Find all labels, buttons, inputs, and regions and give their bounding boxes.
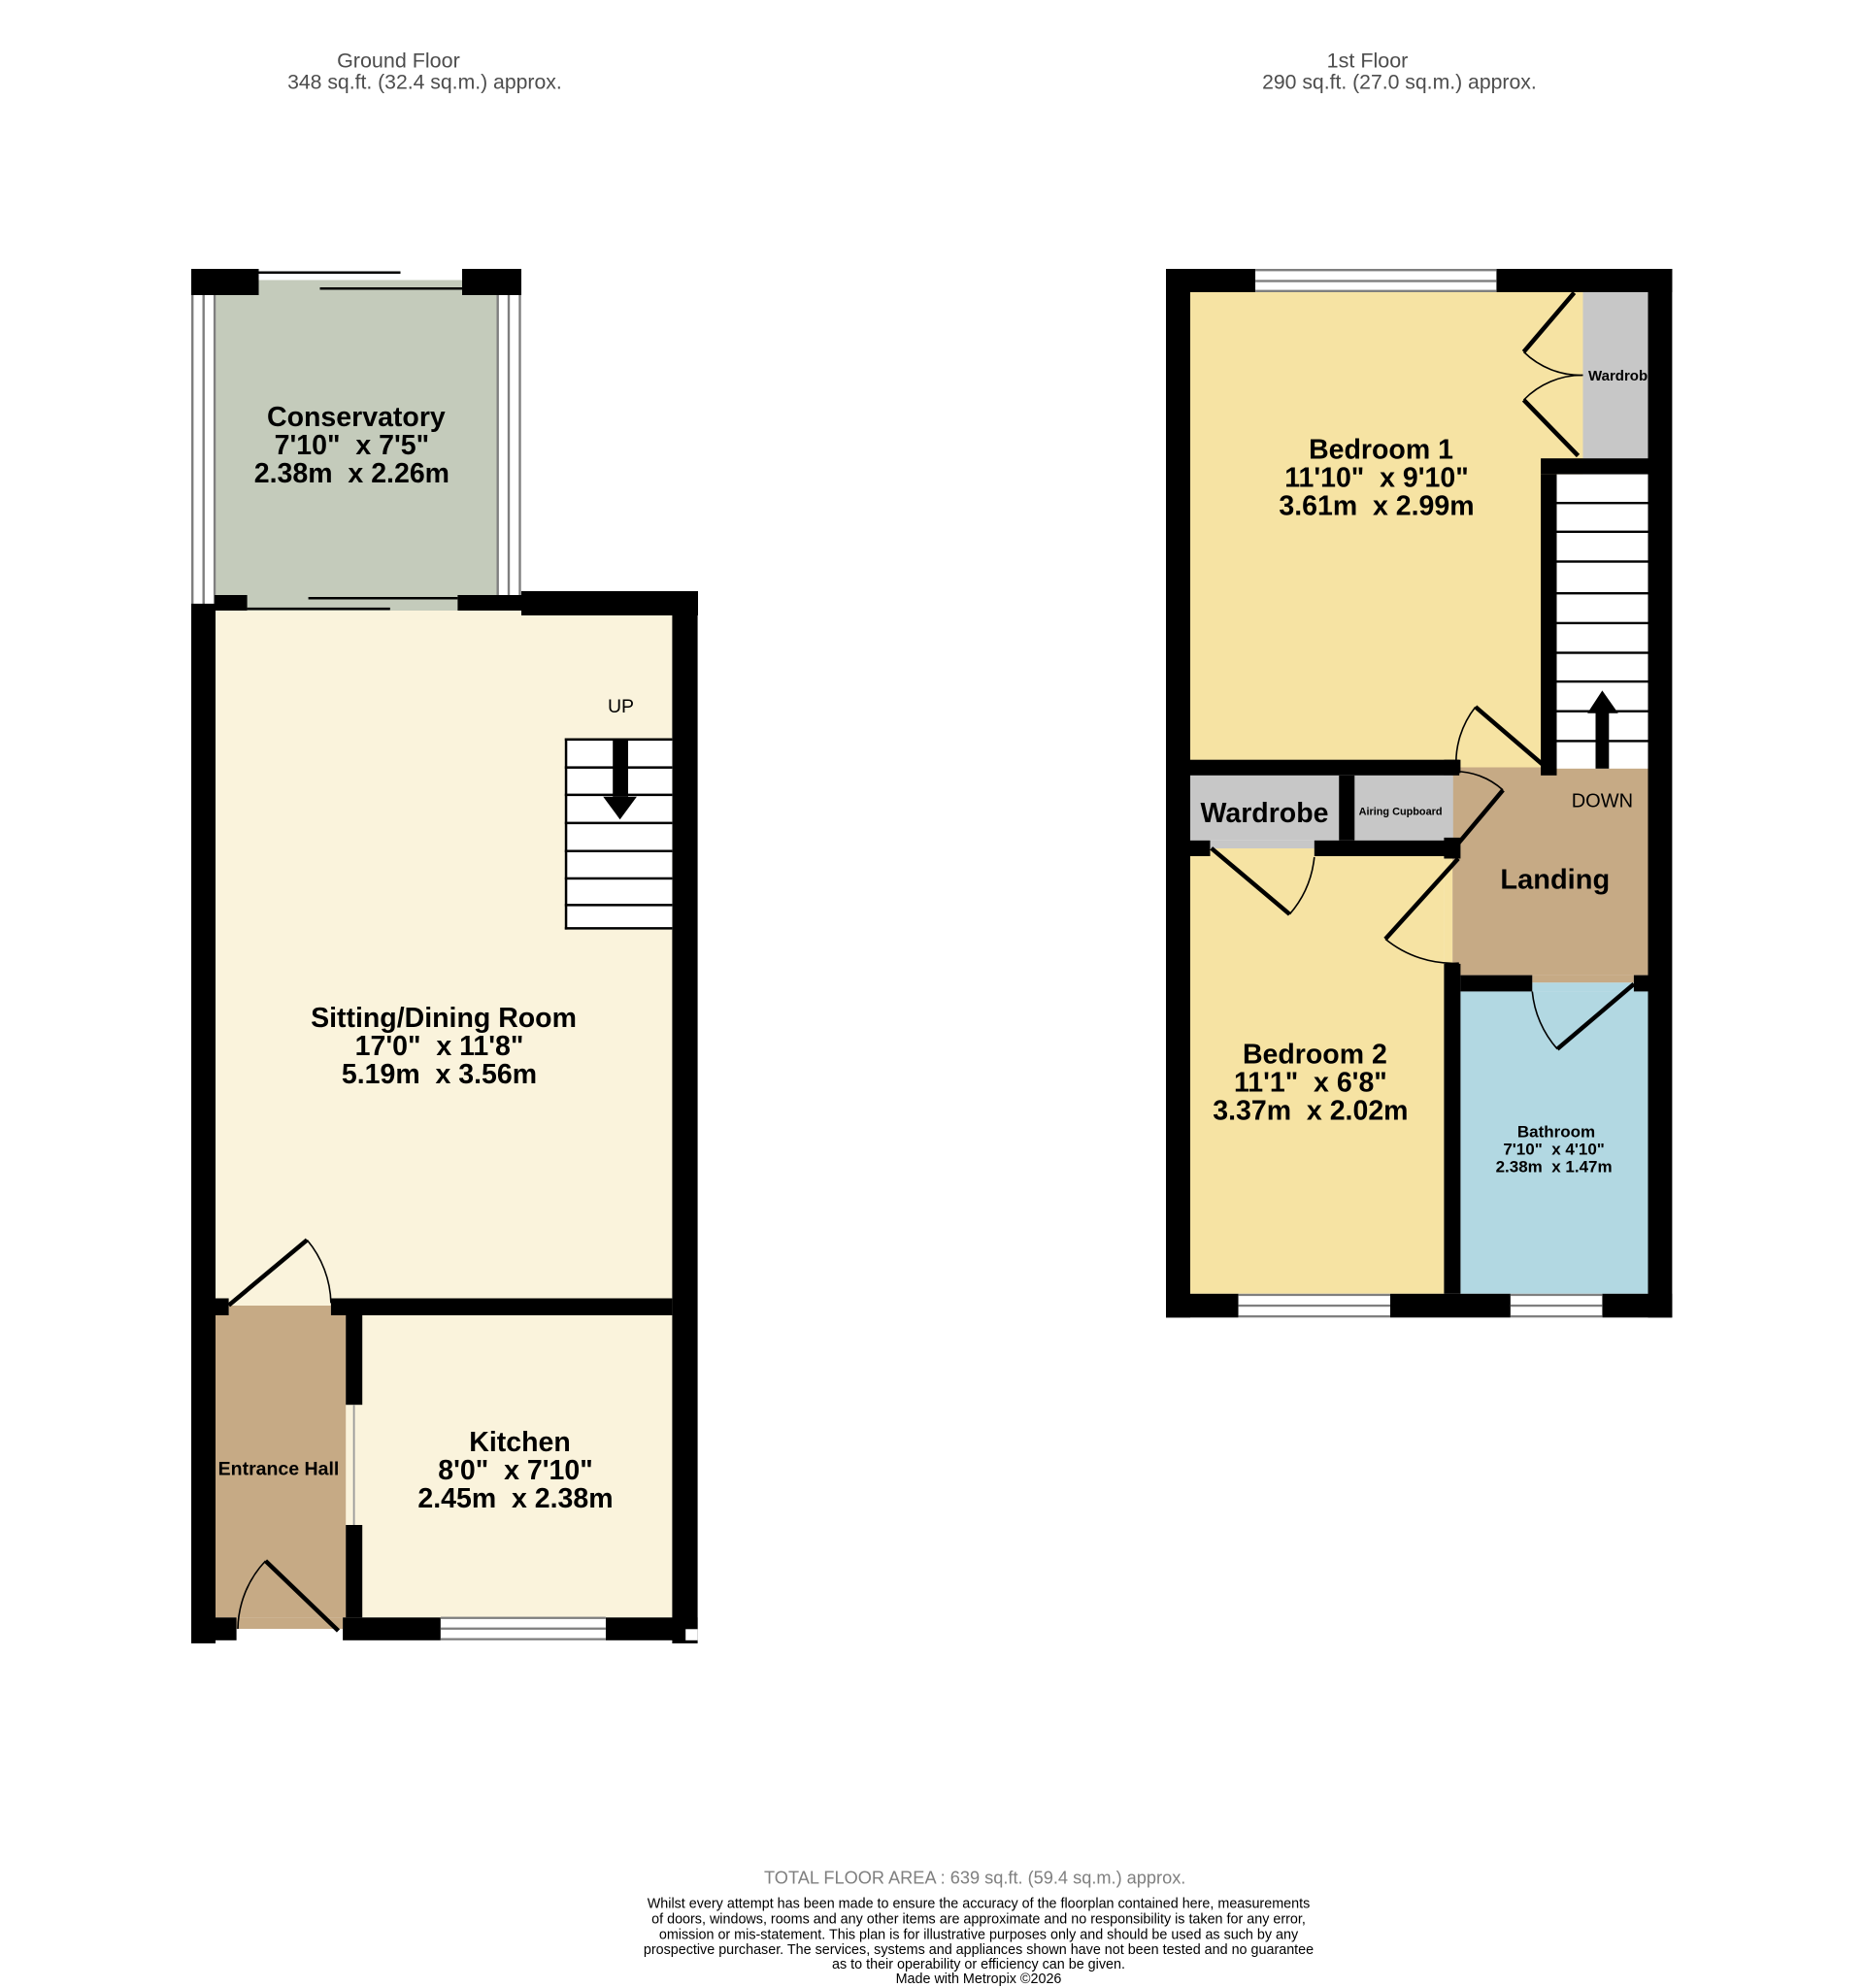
svg-text:Wardrobe: Wardrobe: [1588, 368, 1655, 384]
svg-text:Conservatory: Conservatory: [267, 402, 446, 433]
svg-text:1st Floor: 1st Floor: [1327, 49, 1409, 72]
svg-text:5.19m x 3.56m: 5.19m x 3.56m: [342, 1059, 537, 1090]
svg-text:17'0" x 11'8": 17'0" x 11'8": [355, 1031, 524, 1062]
svg-text:8'0" x 7'10": 8'0" x 7'10": [438, 1455, 592, 1486]
svg-text:7'10" x 4'10": 7'10" x 4'10": [1503, 1141, 1605, 1159]
svg-text:of doors, windows, rooms and a: of doors, windows, rooms and any other i…: [651, 1911, 1306, 1927]
svg-text:Bedroom 1: Bedroom 1: [1309, 435, 1453, 466]
svg-text:Whilst every attempt has been: Whilst every attempt has been made to en…: [648, 1897, 1311, 1912]
svg-text:Bathroom: Bathroom: [1517, 1123, 1595, 1142]
svg-text:7'10" x 7'5": 7'10" x 7'5": [275, 430, 429, 461]
svg-text:omission or mis-statement. Thi: omission or mis-statement. This plan is …: [659, 1927, 1299, 1942]
svg-text:as to their operability or eff: as to their operability or efficiency ca…: [832, 1957, 1125, 1972]
svg-text:Made with Metropix ©2026: Made with Metropix ©2026: [896, 1971, 1062, 1987]
svg-text:2.45m x 2.38m: 2.45m x 2.38m: [417, 1483, 613, 1514]
svg-text:Airing Cupboard: Airing Cupboard: [1359, 807, 1443, 818]
svg-text:3.61m x 2.99m: 3.61m x 2.99m: [1279, 491, 1474, 522]
svg-text:Kitchen: Kitchen: [469, 1427, 571, 1458]
svg-text:prospective purchaser. The ser: prospective purchaser. The services, sys…: [644, 1942, 1314, 1958]
svg-text:Sitting/Dining Room: Sitting/Dining Room: [311, 1003, 577, 1034]
svg-text:UP: UP: [608, 696, 634, 717]
svg-text:Entrance Hall: Entrance Hall: [218, 1459, 340, 1480]
svg-text:DOWN: DOWN: [1572, 791, 1633, 812]
svg-text:Wardrobe: Wardrobe: [1201, 798, 1329, 829]
svg-text:11'10" x 9'10": 11'10" x 9'10": [1284, 463, 1469, 494]
svg-text:290 sq.ft. (27.0 sq.m.) approx: 290 sq.ft. (27.0 sq.m.) approx.: [1262, 71, 1537, 93]
svg-text:Ground Floor: Ground Floor: [337, 49, 460, 72]
svg-text:11'1" x 6'8": 11'1" x 6'8": [1234, 1068, 1387, 1099]
svg-text:Bedroom 2: Bedroom 2: [1243, 1040, 1387, 1071]
svg-text:348 sq.ft. (32.4 sq.m.) approx: 348 sq.ft. (32.4 sq.m.) approx.: [287, 71, 562, 93]
svg-text:Landing: Landing: [1500, 864, 1610, 895]
svg-text:3.37m x 2.02m: 3.37m x 2.02m: [1213, 1096, 1408, 1127]
svg-text:2.38m x 2.26m: 2.38m x 2.26m: [254, 458, 449, 489]
svg-text:2.38m x 1.47m: 2.38m x 1.47m: [1496, 1158, 1613, 1176]
svg-text:TOTAL FLOOR AREA : 639 sq.ft.: TOTAL FLOOR AREA : 639 sq.ft. (59.4 sq.m…: [764, 1869, 1185, 1888]
